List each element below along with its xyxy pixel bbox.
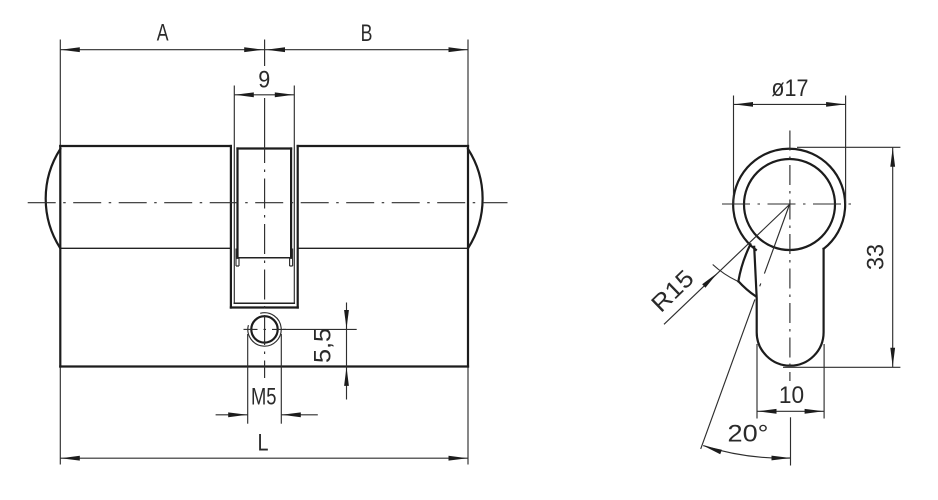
svg-text:A: A (157, 20, 169, 47)
svg-text:ø17: ø17 (771, 75, 808, 102)
svg-text:M5: M5 (251, 383, 277, 410)
svg-text:20°: 20° (728, 421, 769, 448)
svg-text:B: B (361, 20, 373, 47)
svg-text:10: 10 (779, 382, 804, 409)
svg-text:L: L (258, 430, 269, 457)
svg-text:9: 9 (258, 67, 270, 94)
svg-text:5,5: 5,5 (309, 328, 336, 363)
svg-text:33: 33 (863, 244, 890, 270)
